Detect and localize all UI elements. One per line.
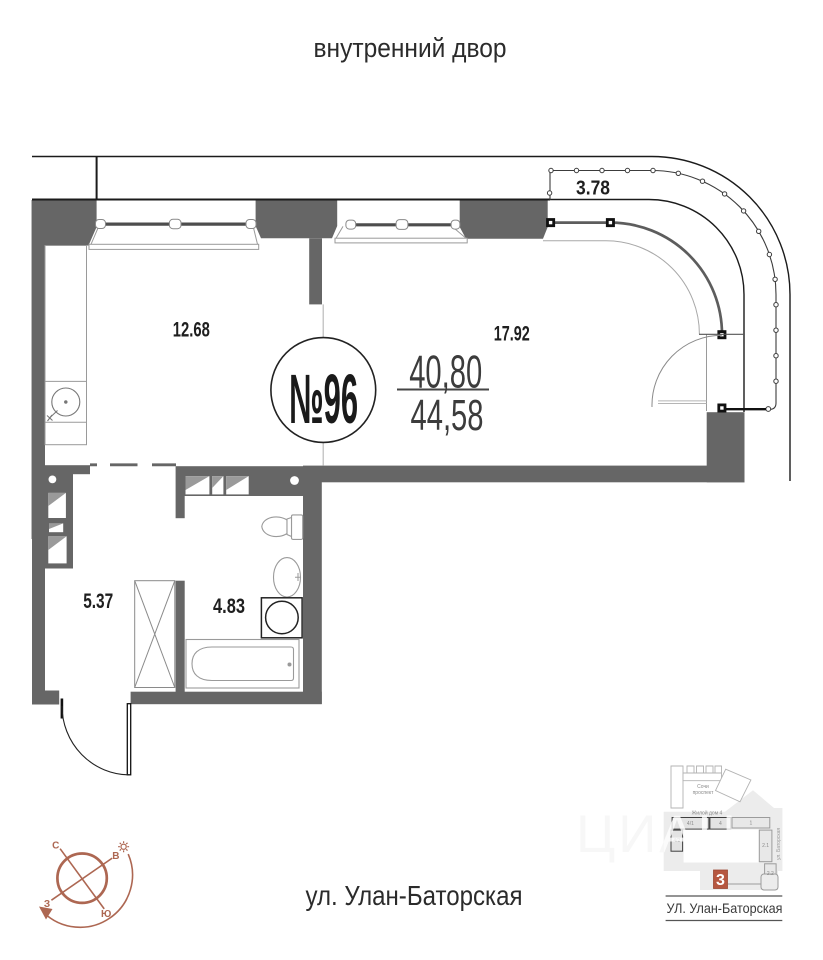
svg-text:3: 3 <box>716 872 725 889</box>
svg-text:УЛ. Улан-Баторская: УЛ. Улан-Баторская <box>667 900 783 916</box>
svg-text:проспект: проспект <box>693 790 715 796</box>
svg-text:12.68: 12.68 <box>173 318 210 341</box>
svg-text:44,58: 44,58 <box>411 391 484 440</box>
svg-text:З: З <box>44 899 50 910</box>
svg-text:5.37: 5.37 <box>83 590 113 613</box>
svg-text:17.92: 17.92 <box>494 322 530 345</box>
svg-text:2.2: 2.2 <box>767 871 774 877</box>
svg-text:внутренний двор: внутренний двор <box>314 33 507 63</box>
svg-text:Ю: Ю <box>101 909 111 920</box>
svg-text:ул. Улан-Баторская: ул. Улан-Баторская <box>306 880 523 911</box>
svg-text:40,80: 40,80 <box>409 346 482 398</box>
svg-text:С: С <box>52 840 59 851</box>
svg-text:2.1: 2.1 <box>762 843 769 849</box>
svg-text:4.83: 4.83 <box>213 595 245 618</box>
svg-text:3.78: 3.78 <box>576 178 610 200</box>
svg-text:1: 1 <box>750 820 753 826</box>
svg-text:№96: №96 <box>289 360 358 438</box>
svg-text:ул. Баторская: ул. Баторская <box>776 828 782 860</box>
svg-text:В: В <box>112 851 119 862</box>
